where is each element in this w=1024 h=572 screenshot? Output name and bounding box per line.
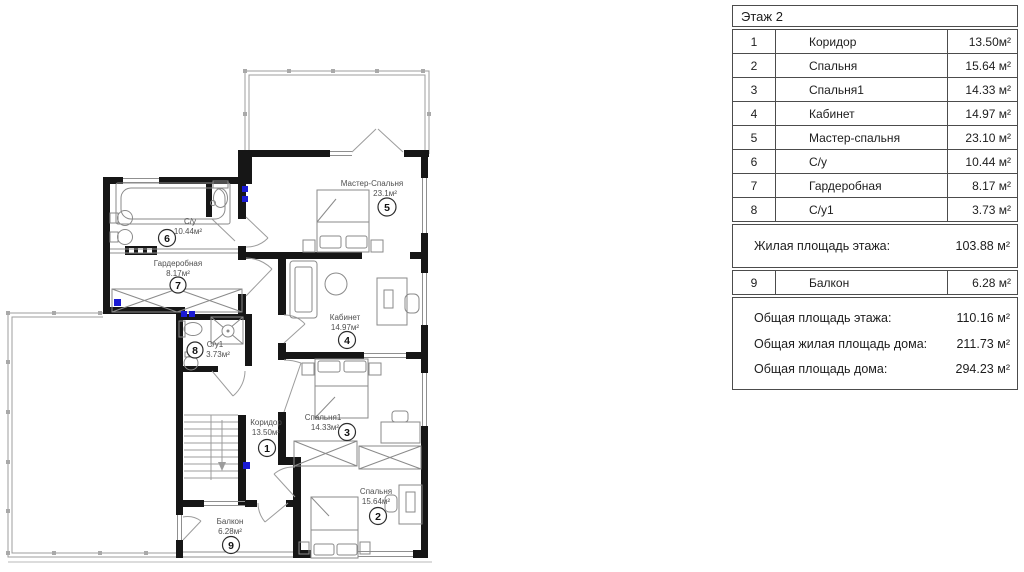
row-number: 7 [733, 174, 775, 197]
table-title-row: Этаж 2 [732, 5, 1018, 27]
table-icon [325, 273, 347, 295]
door-swing [258, 503, 288, 522]
svg-text:5: 5 [384, 202, 390, 214]
svg-text:4: 4 [344, 335, 350, 347]
svg-text:14.97м²: 14.97м² [331, 323, 360, 332]
living-area-value: 103.88 м² [956, 239, 1017, 253]
svg-text:8: 8 [192, 345, 198, 357]
total-label: Общая площадь этажа: [733, 311, 956, 325]
row-area: 13.50м² [947, 30, 1017, 53]
living-area-row: Жилая площадь этажа: 103.88 м² [732, 224, 1018, 268]
svg-text:Гардеробная: Гардеробная [154, 259, 202, 268]
svg-text:3: 3 [344, 427, 350, 439]
row-number: 9 [733, 271, 775, 294]
svg-text:1: 1 [264, 443, 270, 455]
room-label-wc: С/у1 3.73м² 8 [187, 340, 230, 359]
bathtub-icon [116, 183, 230, 224]
row-number: 4 [733, 102, 775, 125]
total-row: Общая площадь дома: 294.23 м² [733, 362, 1017, 376]
svg-text:Спальня1: Спальня1 [305, 413, 342, 422]
svg-text:Спальня: Спальня [360, 487, 392, 496]
table-row: 8 С/у1 3.73 м² [733, 197, 1017, 221]
row-area: 6.28 м² [947, 271, 1017, 294]
table-row: 5 Мастер-спальня 23.10 м² [733, 125, 1017, 149]
row-name: Кабинет [775, 102, 947, 125]
closet-icon [294, 441, 421, 469]
svg-text:Балкон: Балкон [217, 517, 244, 526]
row-number: 8 [733, 198, 775, 221]
svg-text:Кабинет: Кабинет [330, 313, 361, 322]
totals-box: Общая площадь этажа: 110.16 м² Общая жил… [732, 297, 1018, 390]
row-number: 6 [733, 150, 775, 173]
room-rows: 1 Коридор 13.50м² 2 Спальня 15.64 м² 3 С… [732, 29, 1018, 222]
svg-text:Коридор: Коридор [250, 418, 282, 427]
total-label: Общая жилая площадь дома: [733, 337, 956, 351]
row-name: Гардеробная [775, 174, 947, 197]
table-row: 9 Балкон 6.28 м² [733, 271, 1017, 294]
row-area: 14.33 м² [947, 78, 1017, 101]
total-row: Общая жилая площадь дома: 211.73 м² [733, 337, 1017, 351]
svg-text:С/у: С/у [184, 217, 196, 226]
svg-text:2: 2 [375, 511, 381, 523]
total-row: Общая площадь этажа: 110.16 м² [733, 311, 1017, 325]
total-value: 110.16 м² [956, 311, 1017, 325]
stairs-icon [184, 415, 238, 480]
row-area: 23.10 м² [947, 126, 1017, 149]
stairs-down-arrow [218, 420, 226, 471]
row-name: Коридор [775, 30, 947, 53]
row-area: 14.97 м² [947, 102, 1017, 125]
door-swing [274, 467, 295, 497]
toilet-icon [213, 181, 228, 208]
svg-text:С/у1: С/у1 [207, 340, 224, 349]
bed-icon [302, 359, 381, 418]
svg-text:7: 7 [175, 280, 181, 292]
svg-text:23.1м²: 23.1м² [373, 189, 397, 198]
row-name: С/у1 [775, 198, 947, 221]
door-swing [246, 258, 272, 296]
table-row: 3 Спальня1 14.33 м² [733, 77, 1017, 101]
svg-text:9: 9 [228, 540, 234, 552]
table-row: 4 Кабинет 14.97 м² [733, 101, 1017, 125]
row-number: 2 [733, 54, 775, 77]
room-label-bathroom: С/у 10.44м² 6 [159, 217, 203, 247]
bed-icon [299, 497, 370, 558]
svg-text:Мастер-Спальня: Мастер-Спальня [341, 179, 403, 188]
terrace-top-railing [243, 69, 431, 154]
floor-title: Этаж 2 [741, 9, 783, 24]
svg-text:6: 6 [164, 233, 170, 245]
row-area: 3.73 м² [947, 198, 1017, 221]
floor-plan: Мастер-Спальня 23.1м² 5 С/у 10.44м² 6 Га… [0, 0, 732, 572]
room-label-corridor: Коридор 13.50м² 1 [250, 418, 282, 457]
door-swing [246, 217, 268, 247]
total-label: Общая площадь дома: [733, 362, 956, 376]
table-row: 6 С/у 10.44 м² [733, 149, 1017, 173]
sofa-icon [290, 261, 317, 318]
svg-text:6.28м²: 6.28м² [218, 527, 242, 536]
living-area-label: Жилая площадь этажа: [733, 239, 956, 253]
svg-text:10.44м²: 10.44м² [174, 227, 203, 236]
desk-icon [377, 278, 419, 325]
balcony-row-box: 9 Балкон 6.28 м² [732, 270, 1018, 295]
total-value: 294.23 м² [956, 362, 1017, 376]
row-name: С/у [775, 150, 947, 173]
row-number: 3 [733, 78, 775, 101]
room-label-wardrobe: Гардеробная 8.17м² 7 [154, 259, 202, 293]
terrace-left-railing [6, 311, 176, 557]
niche-door [212, 219, 235, 241]
area-table: Этаж 2 1 Коридор 13.50м² 2 Спальня 15.64… [732, 5, 1018, 392]
door-swing [284, 360, 301, 412]
page: { "colors": { "wall": "#161616", "electr… [0, 0, 1024, 572]
bed-icon [303, 190, 383, 252]
table-row: 1 Коридор 13.50м² [733, 30, 1017, 53]
row-name: Спальня [775, 54, 947, 77]
room-label-study: Кабинет 14.97м² 4 [330, 313, 361, 349]
row-name: Балкон [775, 271, 947, 294]
room-label-balcony: Балкон 6.28м² 9 [217, 517, 244, 554]
total-value: 211.73 м² [956, 337, 1017, 351]
desk-icon [381, 411, 420, 443]
door-swing [212, 371, 245, 396]
row-name: Мастер-спальня [775, 126, 947, 149]
svg-text:15.64м²: 15.64м² [362, 497, 391, 506]
row-area: 8.17 м² [947, 174, 1017, 197]
table-row: 2 Спальня 15.64 м² [733, 53, 1017, 77]
svg-text:14.33м²: 14.33м² [311, 423, 340, 432]
svg-text:3.73м²: 3.73м² [206, 350, 230, 359]
french-door [352, 129, 403, 152]
door-swing [183, 517, 201, 540]
row-number: 1 [733, 30, 775, 53]
row-name: Спальня1 [775, 78, 947, 101]
door-swing [284, 315, 305, 343]
row-number: 5 [733, 126, 775, 149]
row-area: 15.64 м² [947, 54, 1017, 77]
table-row: 7 Гардеробная 8.17 м² [733, 173, 1017, 197]
room-label-bedroom: Спальня 15.64м² 2 [360, 487, 392, 525]
row-area: 10.44 м² [947, 150, 1017, 173]
svg-text:13.50м²: 13.50м² [252, 428, 281, 437]
sink-icon [110, 211, 133, 245]
